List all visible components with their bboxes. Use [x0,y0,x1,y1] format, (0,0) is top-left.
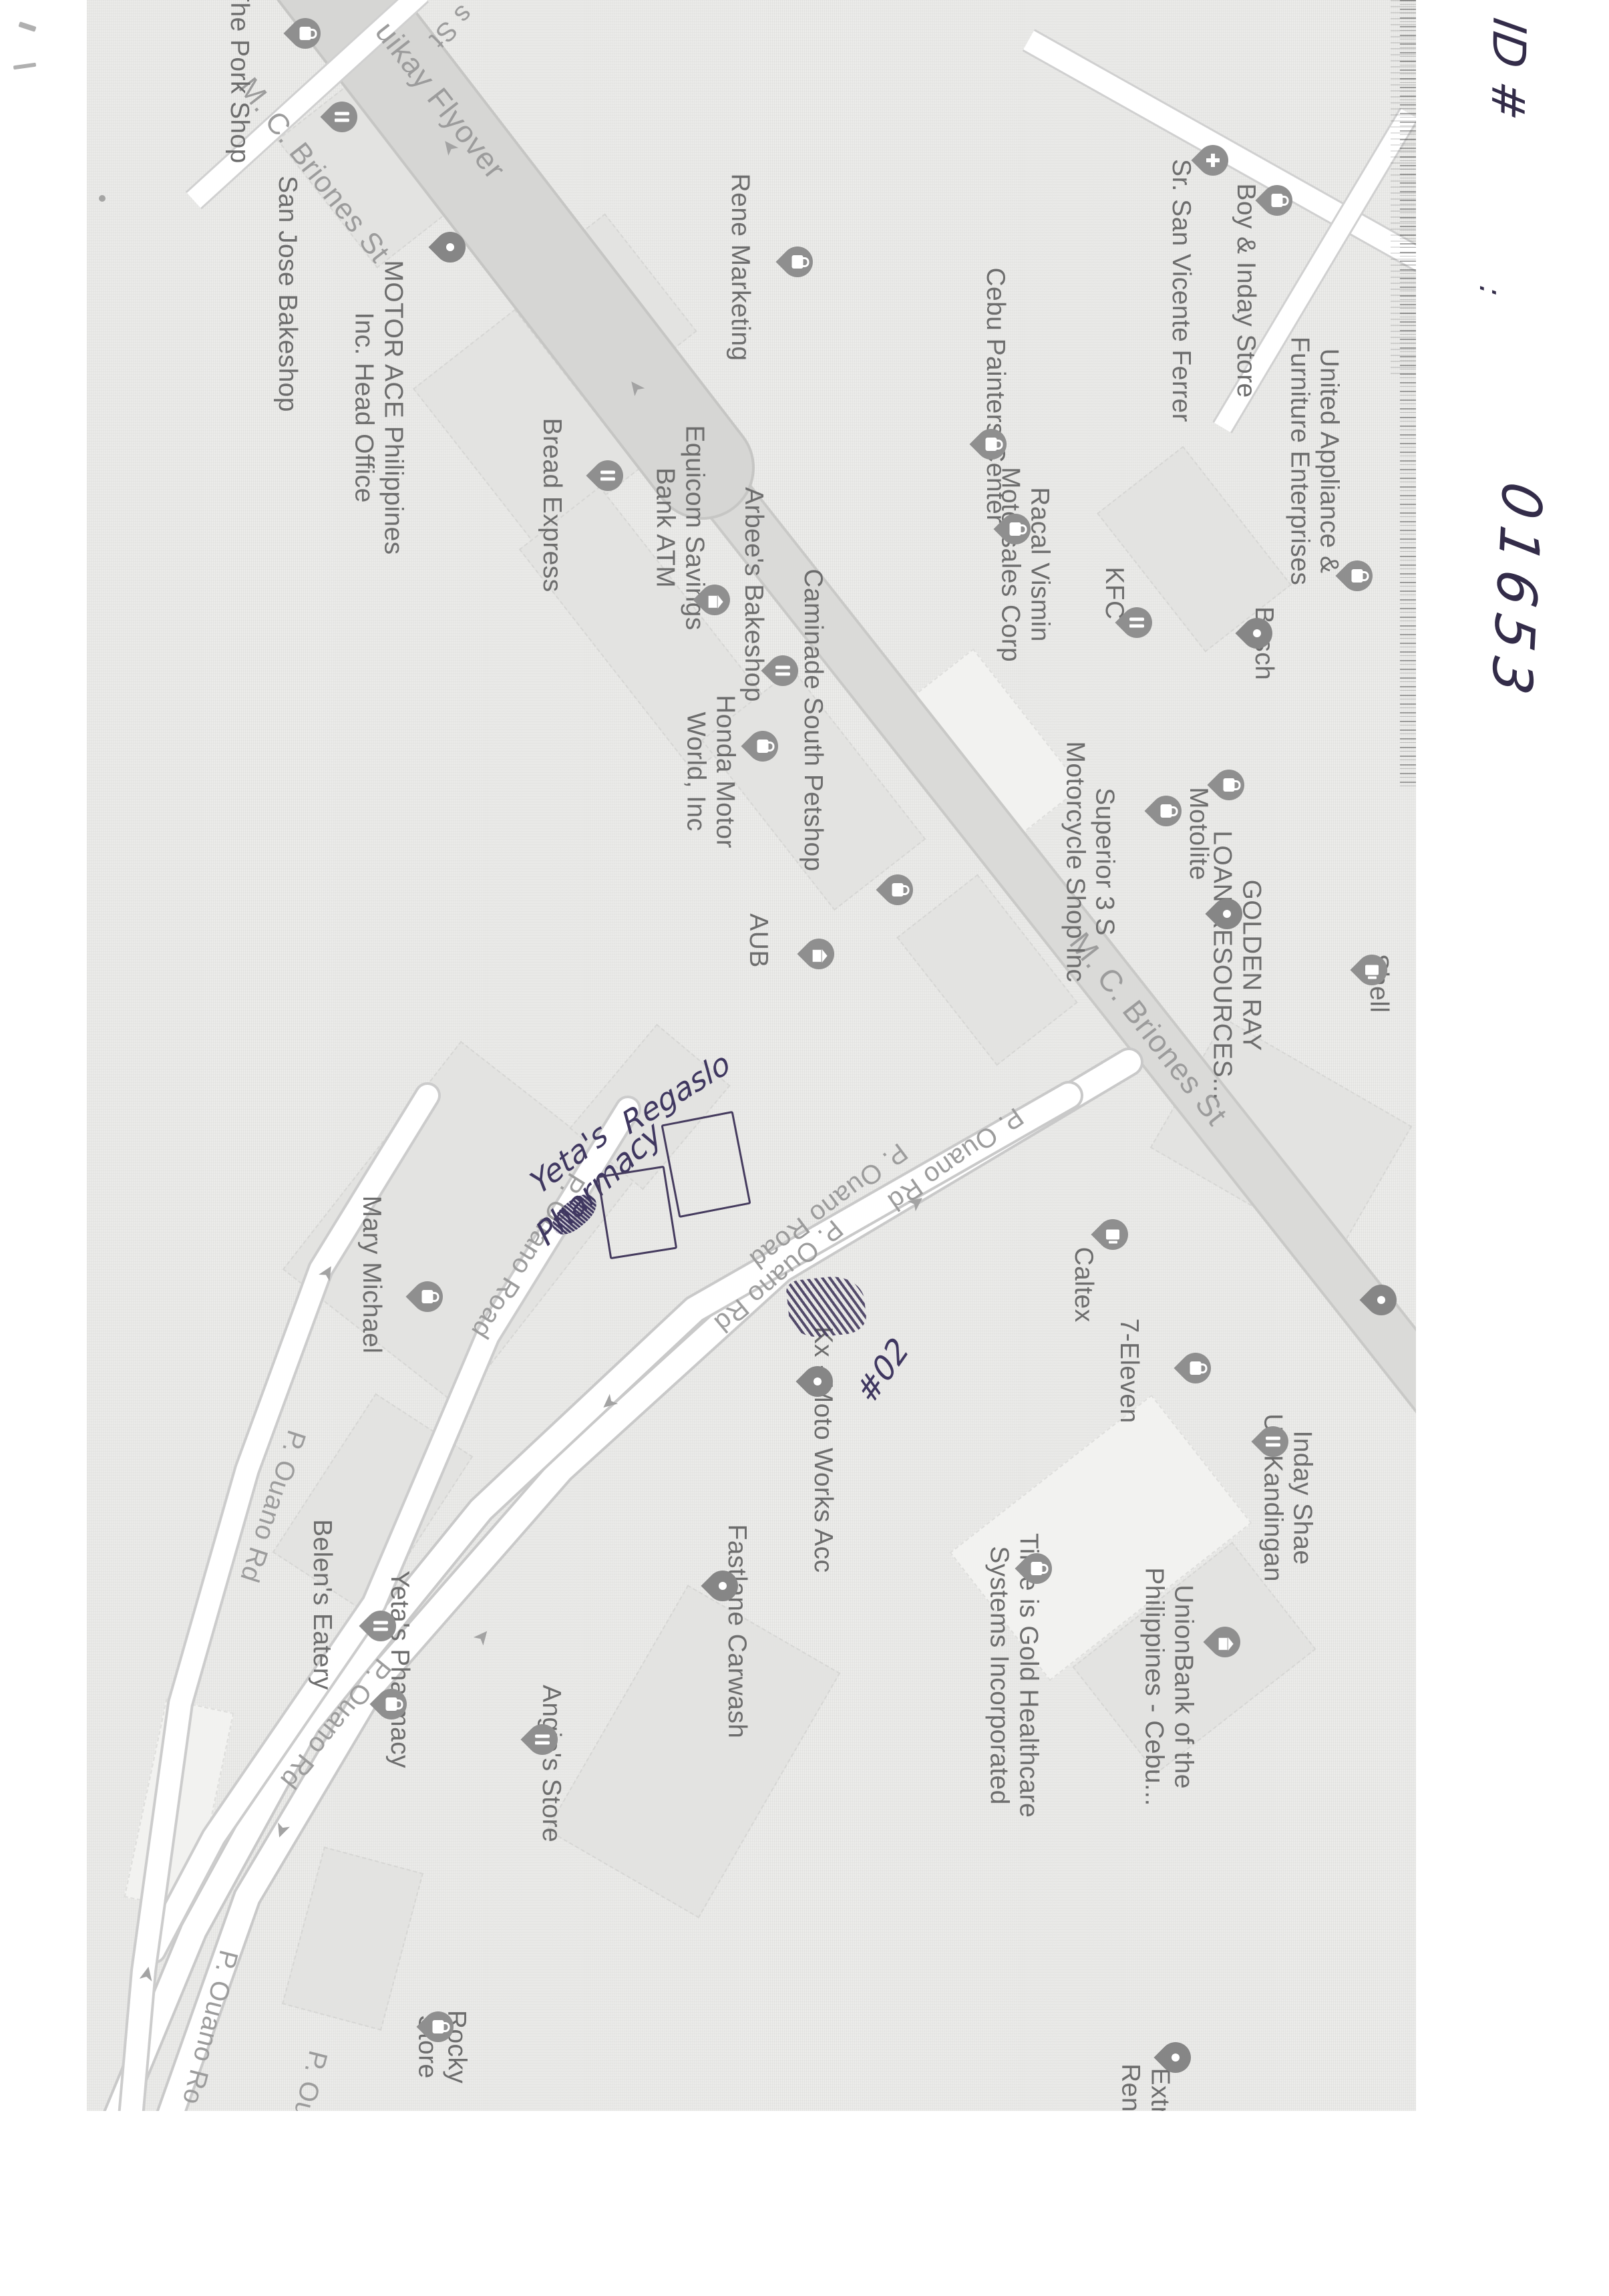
scan-speck [18,21,36,32]
hand-drawn-box [597,1166,677,1259]
pen-hatch-mark [785,1273,868,1340]
pen-annotation-layer: Yeta's Pharmacy Regaslo #02 [0,0,1609,2296]
handwritten-note: #02 [850,1331,917,1411]
hand-drawn-box [661,1111,751,1218]
scanned-page: { "document": { "id_prefix": "ID #", "id… [0,0,1609,2296]
scan-speck [13,63,37,70]
scan-speck [99,195,106,202]
